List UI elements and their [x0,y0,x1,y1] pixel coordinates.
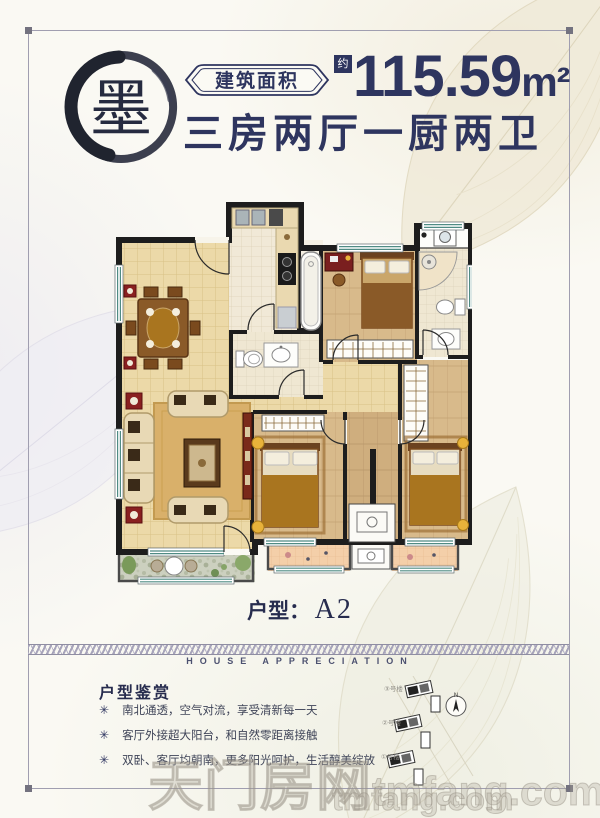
plant-icon [235,555,251,571]
sliding-door-icon [405,538,455,546]
asterisk-icon: ✳ [99,753,109,767]
window-icon [115,429,123,499]
building-icon [405,681,433,698]
frame-corner [25,27,32,34]
fridge-icon [278,307,296,328]
area-label-text: 建筑面积 [215,69,299,92]
plant-icon [122,556,136,574]
compass-north: N [454,693,458,699]
ink-enso-logo: 墨 [56,42,186,172]
sliding-door-icon [148,548,224,556]
asterisk-icon: ✳ [99,728,109,742]
approx-badge: 约 [334,55,352,73]
feature-bullet: ✳南北通透，空气对流，享受清新每一天 [99,702,318,718]
sliding-door-icon [264,538,316,546]
unit-type-label: 户型： [247,600,310,623]
asterisk-icon: ✳ [99,703,109,717]
lamp-icon [252,521,264,533]
lamp-icon [252,437,264,449]
frame-corner [25,785,32,792]
section-heading: 户型鉴赏 [99,679,171,703]
kitchen-appliance [269,209,283,226]
building-label: ②号楼 [382,717,401,727]
kitchen-sink [236,210,249,225]
window-icon [337,244,403,252]
unit-type-value: A2 [315,594,353,625]
window-icon [274,566,344,573]
window-icon [422,222,464,230]
balcony-table-icon [165,557,183,575]
window-icon [467,265,472,309]
floorplan-poster: 墨 建筑面积 约 115.59m² 三房两厅一厨两卫 [0,0,600,818]
window-icon [398,566,454,573]
toilet-icon [236,351,244,367]
watermark: tmfang.com [332,781,513,818]
bullet-text: 南北通透，空气对流，享受清新每一天 [122,705,318,717]
floorplan-drawing [112,197,472,591]
compass-icon: N [446,693,466,716]
building-label: ③号楼 [384,683,403,693]
divider-caption: HOUSE APPRECIATION [0,656,600,666]
lamp-icon [458,520,469,531]
window-icon [138,577,234,584]
frame-corner [566,27,573,34]
ornamental-divider [28,644,569,655]
window-icon [115,265,123,323]
lamp-icon [458,438,469,449]
area-label-plaque: 建筑面积 [181,60,333,100]
unit-type-row: 户型： A2 [0,594,600,626]
toilet-icon [437,300,454,314]
building-area-value: 115.59m² [353,48,569,106]
logo-character: 墨 [90,76,152,144]
layout-summary: 三房两厅一厨两卫 [183,112,543,156]
area-value: 115.59 [353,44,521,109]
area-unit: m² [521,59,569,105]
utility-shaft [349,504,395,542]
watermark-domain: tmfang.com [332,781,513,817]
